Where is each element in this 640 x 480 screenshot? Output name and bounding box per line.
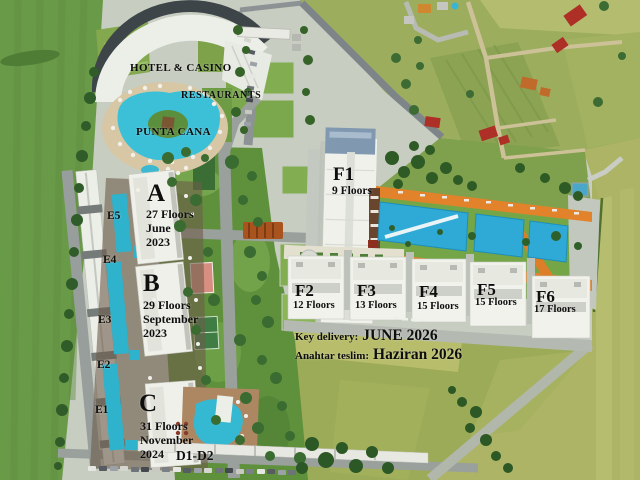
label-e4: E4 — [103, 255, 116, 267]
label-f3: F3 — [357, 282, 376, 299]
label-e1: E1 — [95, 405, 108, 417]
f3-floors: 13 Floors — [355, 301, 397, 312]
tower-b-year: 2023 — [143, 326, 198, 340]
label-f4: F4 — [419, 283, 438, 300]
label-punta-cana: PUNTA CANA — [136, 127, 211, 138]
info-tower-b: 29 Floors September 2023 — [143, 298, 198, 340]
label-e3: E3 — [98, 315, 111, 327]
label-e5: E5 — [107, 211, 120, 223]
info-tower-a: 27 Floors June 2023 — [146, 207, 194, 249]
label-hotel-casino: HOTEL & CASINO — [130, 63, 232, 74]
label-f2: F2 — [295, 282, 314, 299]
delivery-note-tr: Anahtar teslim: Haziran 2026 — [295, 347, 462, 363]
label-tower-c: C — [139, 391, 157, 416]
f1-floors: 9 Floors — [332, 186, 372, 198]
delivery-en-label: Key delivery: — [295, 331, 358, 343]
label-f5: F5 — [477, 281, 496, 298]
park-bridge — [243, 222, 283, 239]
tower-a-floors: 27 Floors — [146, 207, 194, 221]
delivery-note-en: Key delivery: JUNE 2026 — [295, 328, 462, 344]
f6-floors: 17 Floors — [534, 305, 576, 316]
label-d1-d2: D1-D2 — [176, 449, 214, 463]
tower-a-month: June — [146, 221, 194, 235]
label-f6: F6 — [536, 288, 555, 305]
label-e2: E2 — [97, 360, 110, 372]
tower-a-year: 2023 — [146, 235, 194, 249]
delivery-en-value: JUNE 2026 — [362, 327, 437, 344]
master-plan-image: HOTEL & CASINO RESTAURANTS PUNTA CANA A … — [0, 0, 640, 480]
tower-b-month: September — [143, 312, 198, 326]
label-tower-b: B — [143, 271, 160, 296]
label-tower-a: A — [147, 181, 165, 206]
f2-floors: 12 Floors — [293, 301, 335, 312]
delivery-tr-value: Haziran 2026 — [373, 346, 462, 363]
tower-b-floors: 29 Floors — [143, 298, 198, 312]
label-f1: F1 — [333, 165, 354, 184]
label-restaurants: RESTAURANTS — [181, 91, 261, 101]
f5-floors: 15 Floors — [475, 298, 517, 309]
tower-c-floors: 31 Floors — [140, 419, 193, 433]
delivery-tr-label: Anahtar teslim: — [295, 350, 369, 362]
delivery-note: Key delivery: JUNE 2026 Anahtar teslim: … — [295, 328, 462, 366]
tower-c-month: November — [140, 433, 193, 447]
f4-floors: 15 Floors — [417, 302, 459, 313]
